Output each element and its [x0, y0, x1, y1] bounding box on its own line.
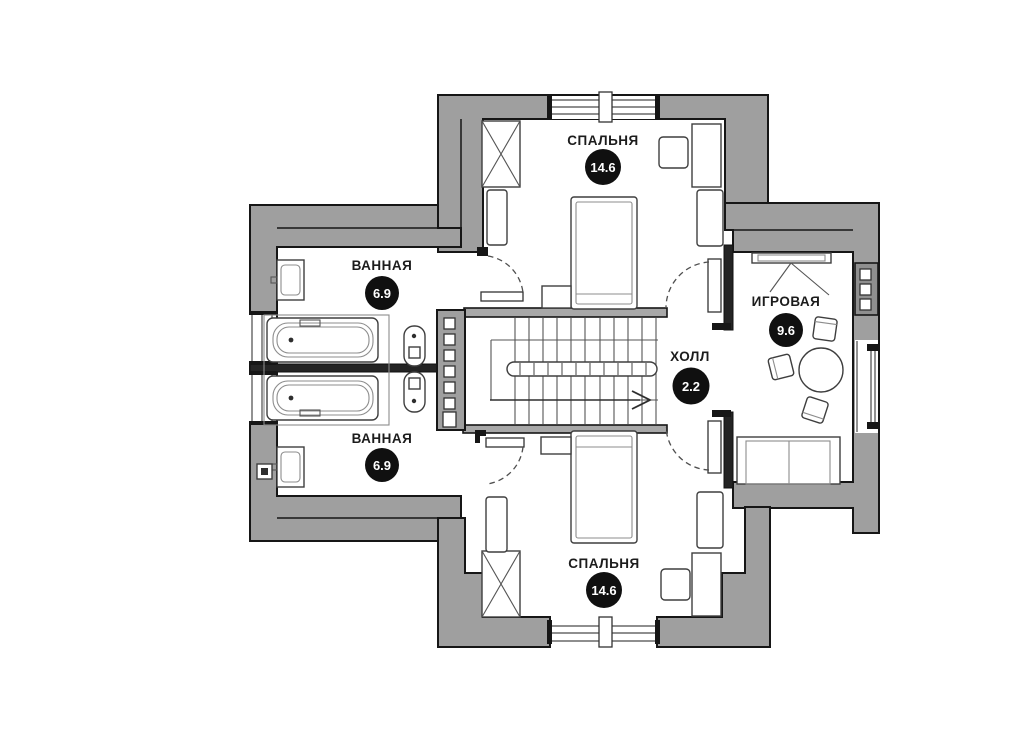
ventilation-shaft: [437, 310, 465, 430]
room-label-hall: ХОЛЛ 2.2: [670, 349, 710, 405]
room-name: ВАННАЯ: [352, 258, 413, 273]
window-bottom: [547, 617, 660, 647]
bathroom-fixtures: [257, 260, 425, 487]
wall-hall-playroom-lower: [724, 412, 733, 488]
nightstand: [542, 286, 571, 308]
bed: [571, 431, 637, 543]
stair-wall-top: [464, 308, 667, 317]
shelf: [486, 497, 507, 552]
chair: [659, 137, 688, 168]
window-mullion: [599, 92, 612, 122]
door-bedroom-bottom-right: [666, 421, 721, 473]
stool: [813, 317, 838, 342]
wall-left-wing: [250, 205, 461, 541]
ventilation-shaft-right: [855, 263, 878, 315]
stair-direction-arrow: [490, 391, 650, 409]
wall-jamb: [712, 410, 731, 417]
room-label-playroom: ИГРОВАЯ 9.6: [752, 294, 821, 347]
window-mullion: [599, 617, 612, 647]
stair-handrail: [507, 362, 657, 376]
wall-jamb: [712, 323, 731, 330]
room-label-bathroom-upper: ВАННАЯ 6.9: [352, 258, 413, 310]
room-area: 9.6: [777, 323, 795, 338]
room-area: 6.9: [373, 458, 391, 473]
window-right: [855, 340, 878, 433]
room-area: 6.9: [373, 286, 391, 301]
bed: [571, 197, 637, 309]
floor-plan-page: СПАЛЬНЯ 14.6 ВАННАЯ 6.9 ВАННАЯ 6.9 ХОЛЛ …: [0, 0, 1024, 741]
shelf: [487, 190, 507, 245]
wardrobe: [482, 551, 520, 617]
wardrobe: [482, 121, 520, 187]
wall-hall-playroom-upper: [724, 245, 733, 330]
tv-console: [752, 253, 831, 295]
toilet-lower: [404, 372, 425, 412]
desk: [692, 124, 721, 187]
bathtub-upper: [267, 318, 378, 362]
room-name: ХОЛЛ: [670, 349, 710, 364]
room-area: 14.6: [591, 583, 616, 598]
room-name: ИГРОВАЯ: [752, 294, 821, 309]
room-name: ВАННАЯ: [352, 431, 413, 446]
room-name: СПАЛЬНЯ: [568, 556, 640, 571]
room-label-bathroom-lower: ВАННАЯ 6.9: [352, 431, 413, 482]
chair: [661, 569, 690, 600]
room-label-bedroom-top: СПАЛЬНЯ 14.6: [567, 133, 639, 185]
room-area: 2.2: [682, 379, 700, 394]
desk: [692, 553, 721, 616]
door-bedroom-top-left: [477, 247, 523, 301]
room-area: 14.6: [590, 160, 615, 175]
water-heater: [257, 464, 272, 479]
stool: [801, 396, 829, 424]
bathtub-lower: [267, 376, 378, 420]
window-top: [547, 92, 660, 122]
shelf: [697, 492, 723, 548]
shelf: [697, 190, 723, 246]
nightstand: [541, 437, 571, 454]
floor-plan-drawing: СПАЛЬНЯ 14.6 ВАННАЯ 6.9 ВАННАЯ 6.9 ХОЛЛ …: [0, 0, 1024, 741]
toilet-upper: [404, 326, 425, 366]
sofa: [737, 437, 840, 484]
room-name: СПАЛЬНЯ: [567, 133, 639, 148]
round-table: [799, 348, 843, 392]
door-bedroom-bottom-left: [475, 430, 524, 484]
room-label-bedroom-bottom: СПАЛЬНЯ 14.6: [568, 556, 640, 608]
door-bedroom-top-right: [666, 259, 721, 312]
stool: [768, 354, 795, 381]
staircase: [437, 308, 667, 433]
